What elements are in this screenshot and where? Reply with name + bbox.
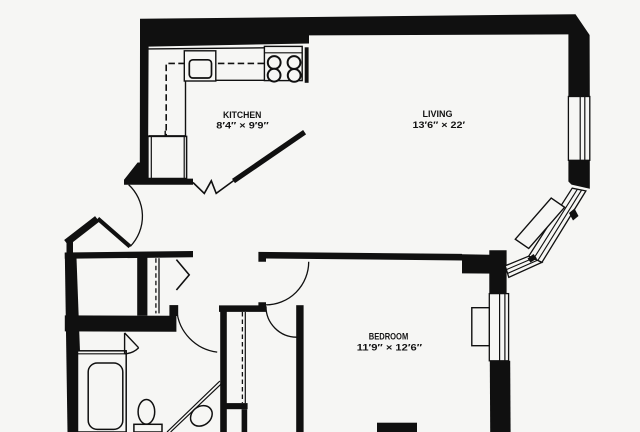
svg-text:BEDROOM: BEDROOM: [369, 332, 409, 342]
svg-text:KITCHEN: KITCHEN: [223, 110, 262, 120]
svg-text:LIVING: LIVING: [423, 109, 453, 119]
svg-text:13′6″ × 22′: 13′6″ × 22′: [413, 120, 466, 131]
svg-text:8′4″ × 9′9″: 8′4″ × 9′9″: [216, 121, 269, 132]
svg-text:11′9″ × 12′6″: 11′9″ × 12′6″: [357, 343, 423, 354]
